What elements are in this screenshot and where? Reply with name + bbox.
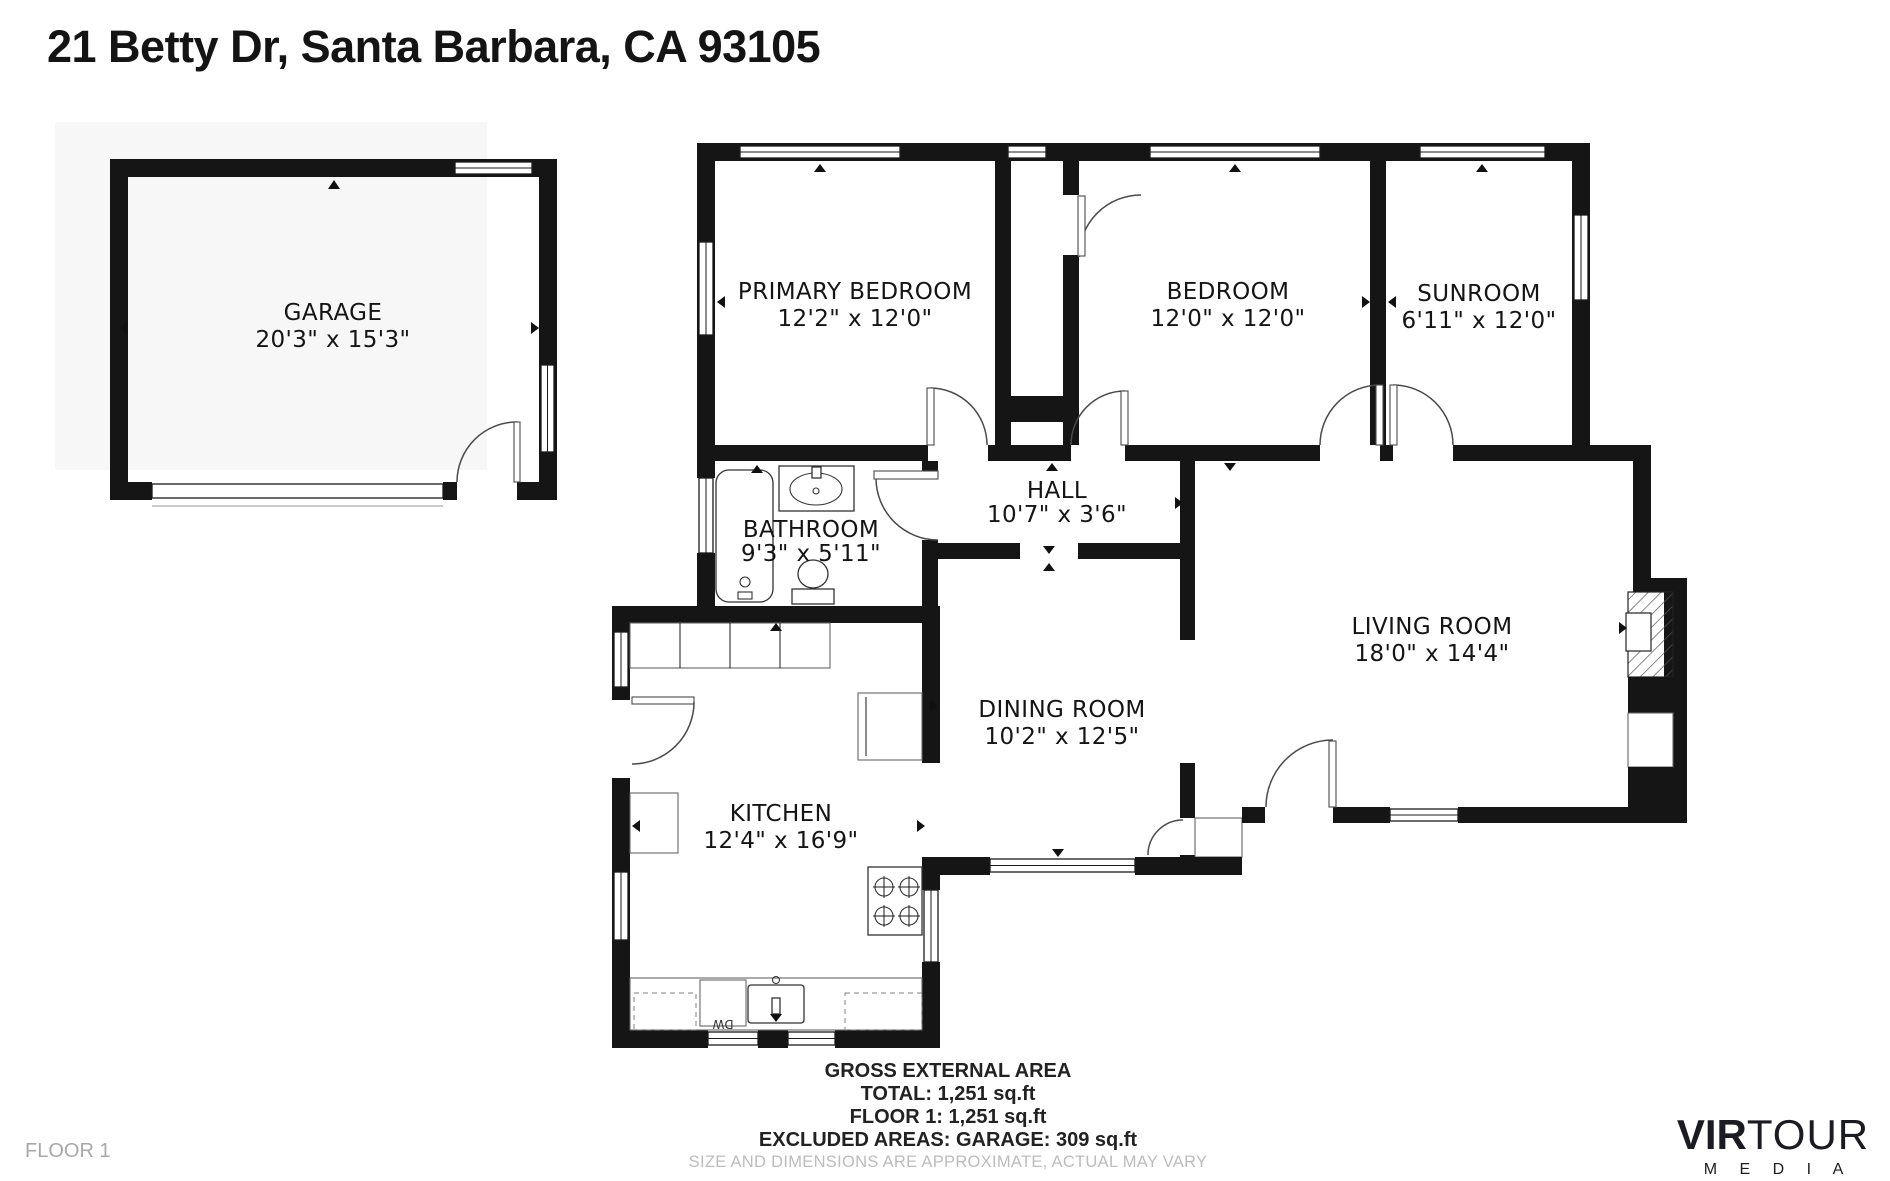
wall-segment <box>443 482 457 500</box>
wall-segment <box>938 543 1020 559</box>
virtour-media-logo: VIRTOUR M E D I A <box>1677 1111 1869 1178</box>
wall-segment <box>1333 807 1390 823</box>
wall-segment <box>517 482 557 500</box>
logo-light-part: TOUR <box>1747 1111 1869 1158</box>
dishwasher-label: DW <box>712 1017 733 1031</box>
wall-segment <box>995 396 1079 422</box>
wall-segment <box>988 445 1071 461</box>
room-dims-kitchen: 12'4" x 16'9" <box>703 828 858 854</box>
room-label-living-room: LIVING ROOM <box>1352 614 1513 640</box>
window <box>699 242 713 335</box>
wall-segment <box>110 482 152 500</box>
logo-bold-part: VIR <box>1677 1111 1747 1158</box>
area-summary-excluded: EXCLUDED AREAS: GARAGE: 309 sq.ft <box>759 1129 1138 1151</box>
area-summary-floor1: FLOOR 1: 1,251 sq.ft <box>850 1106 1047 1128</box>
room-label-garage: GARAGE <box>284 300 383 326</box>
wall-segment <box>922 540 938 606</box>
room-label-kitchen: KITCHEN <box>730 801 832 827</box>
sink-faucet <box>812 467 821 478</box>
wall-segment <box>697 461 715 478</box>
window <box>614 872 628 940</box>
window <box>699 478 713 553</box>
area-summary-total: TOTAL: 1,251 sq.ft <box>861 1083 1036 1105</box>
floor-label: FLOOR 1 <box>25 1140 111 1162</box>
room-dims-living-room: 18'0" x 14'4" <box>1354 641 1509 667</box>
room-dims-bathroom: 9'3" x 5'11" <box>741 541 881 567</box>
window <box>1008 146 1046 158</box>
wall-segment <box>1180 461 1195 640</box>
wall-segment <box>835 1030 940 1048</box>
window <box>990 859 1135 872</box>
wall-segment <box>758 1030 788 1048</box>
door-leaf <box>1376 385 1383 445</box>
wall-segment <box>1063 161 1079 195</box>
room-dims-bedroom: 12'0" x 12'0" <box>1150 306 1305 332</box>
door-leaf <box>927 388 934 445</box>
room-dims-sunroom: 6'11" x 12'0" <box>1401 308 1556 334</box>
wall-segment <box>1063 255 1079 396</box>
window <box>924 890 938 962</box>
room-label-bedroom: BEDROOM <box>1167 279 1290 305</box>
wall-segment <box>697 553 715 606</box>
area-summary-heading: GROSS EXTERNAL AREA <box>825 1060 1072 1082</box>
wall-segment <box>1572 161 1590 461</box>
window <box>1390 809 1458 821</box>
window <box>740 146 900 158</box>
wall-segment <box>995 422 1011 445</box>
door-leaf <box>1390 385 1397 445</box>
wall-segment <box>1135 857 1242 875</box>
window <box>1150 146 1320 158</box>
logo-wordmark: VIRTOUR <box>1677 1111 1869 1158</box>
page-title: 21 Betty Dr, Santa Barbara, CA 93105 <box>47 21 820 72</box>
room-dims-hall: 10'7" x 3'6" <box>987 502 1127 528</box>
wall-segment <box>1628 677 1673 713</box>
wall-segment <box>922 857 940 890</box>
wall-segment <box>612 1030 708 1048</box>
door-leaf <box>1078 196 1085 256</box>
wall-segment <box>1125 445 1320 461</box>
window <box>788 1032 835 1045</box>
wall-segment <box>1180 763 1195 818</box>
landing-step <box>1195 818 1242 857</box>
wall-segment <box>940 857 990 875</box>
window <box>541 365 554 452</box>
wall-segment <box>1628 767 1673 823</box>
wall-segment <box>922 606 940 763</box>
fireplace-firebox <box>1626 613 1651 651</box>
window <box>614 632 628 687</box>
room-label-sunroom: SUNROOM <box>1417 281 1540 307</box>
room-dims-garage: 20'3" x 15'3" <box>255 327 410 353</box>
floor-plan-svg: 21 Betty Dr, Santa Barbara, CA 93105 GAR… <box>0 0 1890 1181</box>
area-summary-disclaimer: SIZE AND DIMENSIONS ARE APPROXIMATE, ACT… <box>689 1153 1208 1171</box>
door-leaf <box>1329 741 1336 807</box>
garage-door <box>152 484 443 498</box>
wall-segment <box>1078 543 1180 559</box>
window <box>455 162 532 174</box>
room-label-dining-room: DINING ROOM <box>978 697 1145 723</box>
wall-segment <box>697 445 928 461</box>
wall-segment <box>612 606 940 623</box>
door-leaf <box>514 422 520 482</box>
room-label-bathroom: BATHROOM <box>743 517 879 543</box>
stove-icon <box>868 867 922 935</box>
window <box>1420 146 1545 158</box>
room-label-hall: HALL <box>1027 478 1087 504</box>
room-dims-primary-bedroom: 12'2" x 12'0" <box>777 306 932 332</box>
wall-segment <box>1453 445 1651 461</box>
wall-segment <box>110 177 128 500</box>
kitchen-cabinets <box>630 623 830 668</box>
door-leaf <box>632 697 694 704</box>
fireplace-niche <box>1628 713 1673 767</box>
floor-plan-page: 21 Betty Dr, Santa Barbara, CA 93105 GAR… <box>0 0 1890 1181</box>
garage-room: GARAGE 20'3" x 15'3" <box>55 122 557 506</box>
window <box>708 1032 758 1045</box>
room-label-primary-bedroom: PRIMARY BEDROOM <box>738 279 972 305</box>
logo-subtitle: M E D I A <box>1704 1161 1853 1178</box>
door-leaf <box>874 471 938 479</box>
wall-segment <box>1242 807 1265 823</box>
toilet-tank <box>792 589 834 604</box>
counter-icon <box>858 693 922 760</box>
wall-segment <box>1633 445 1651 578</box>
door-leaf <box>1121 391 1128 445</box>
window <box>1574 215 1588 300</box>
wall-segment <box>995 161 1011 396</box>
dishwasher-icon: DW <box>700 980 746 1031</box>
room-dims-dining-room: 10'2" x 12'5" <box>984 724 1139 750</box>
wall-segment <box>1380 445 1393 461</box>
